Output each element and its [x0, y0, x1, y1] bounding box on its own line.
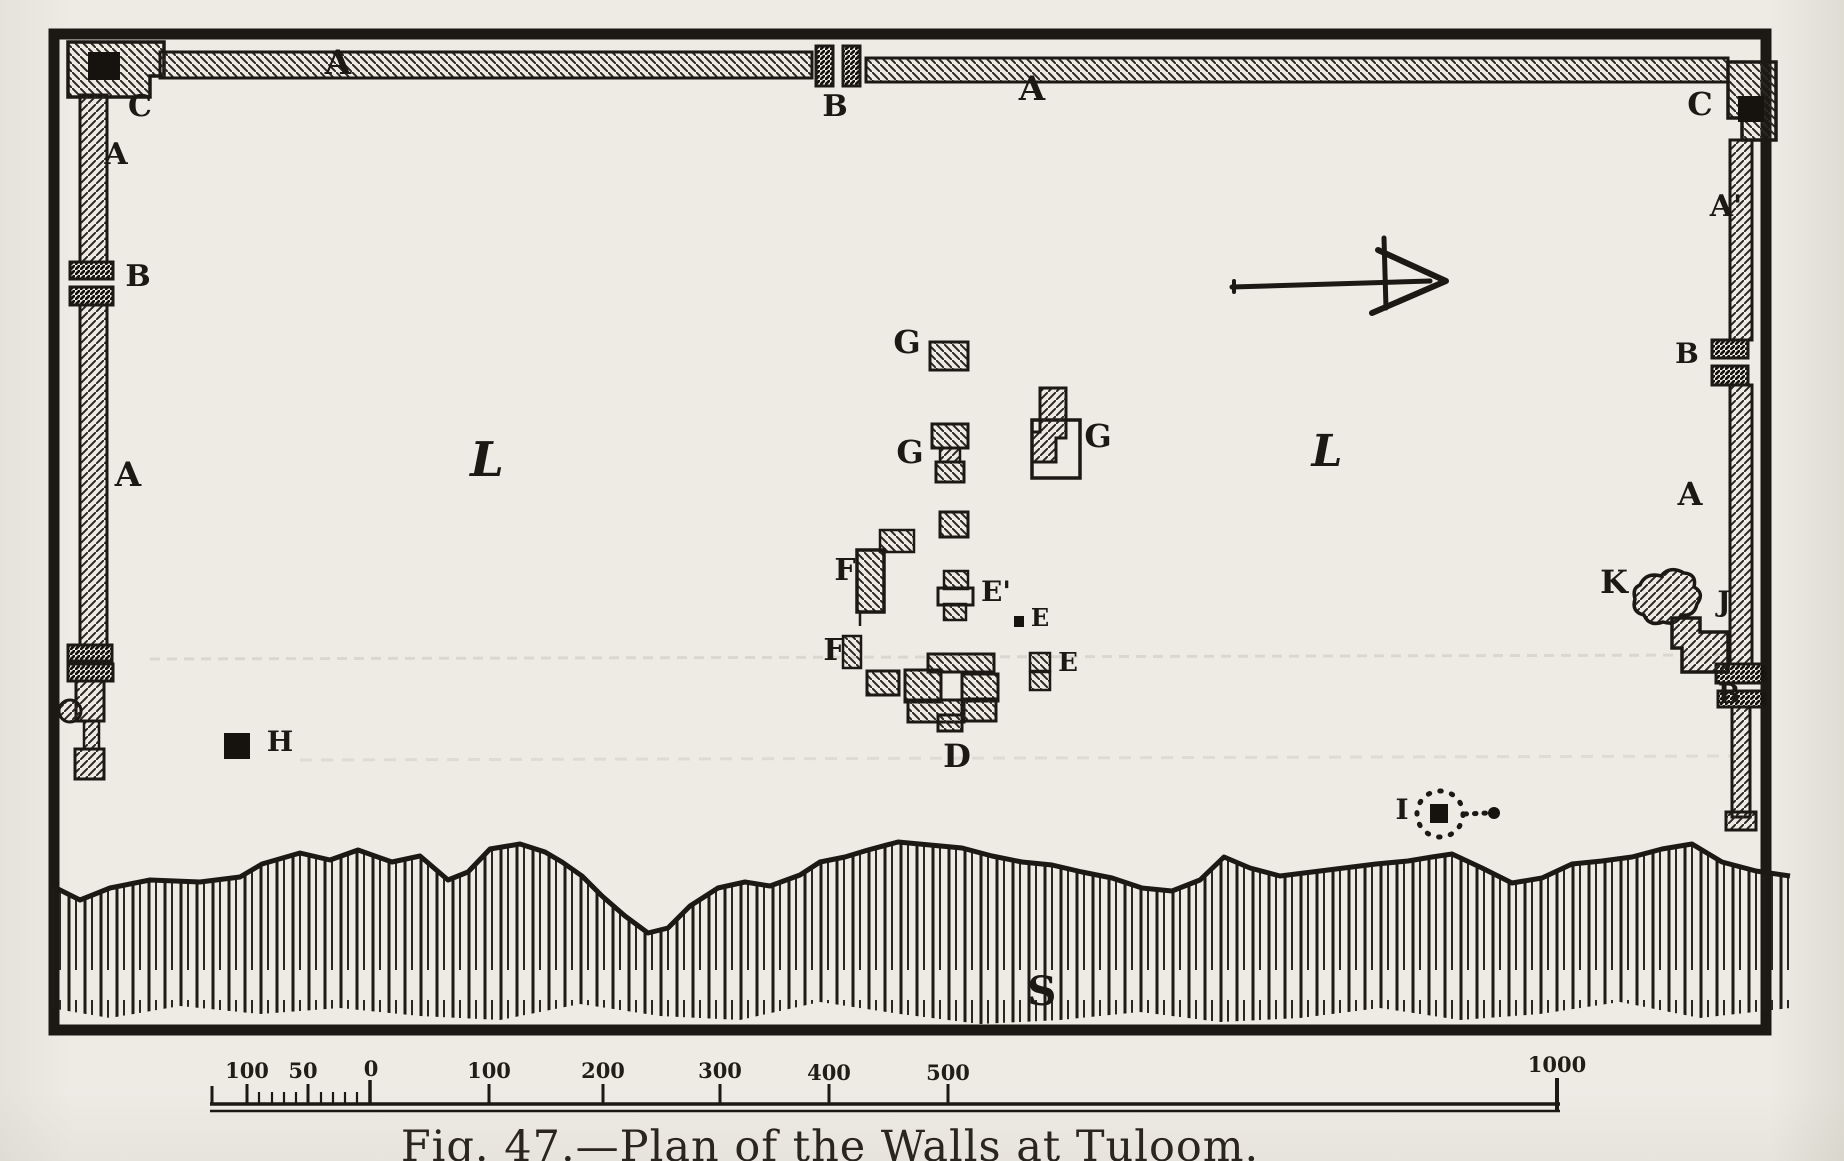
west-gate2-pier-top: [68, 645, 112, 661]
northwest-tower-chamber: [88, 52, 120, 80]
figure-caption: Fig. 47.—Plan of the Walls at Tuloom.: [401, 1122, 1259, 1161]
east-gate-upper-pier-bottom: [1712, 366, 1748, 385]
label-b-west-gate: B: [125, 262, 150, 292]
label-l-plaza-east: L: [1312, 430, 1343, 474]
west-wall-neck: [84, 721, 99, 749]
west-wall-end-block: [75, 749, 104, 779]
east-gate-upper-pier-top: [1712, 340, 1748, 358]
west-wall: [59, 95, 113, 779]
scale-tick-label: 400: [807, 1062, 851, 1083]
structure-g1: [930, 342, 968, 370]
east-wall: [1712, 140, 1768, 830]
scale-tick-label: 0: [364, 1058, 379, 1079]
structure-h: [224, 733, 250, 759]
structure-e-marker: [1014, 616, 1024, 627]
plan-drawing: [0, 0, 1844, 1161]
east-wall-lower-band: [1732, 707, 1750, 817]
structure-f2: [843, 636, 861, 668]
scale-bar: [210, 1078, 1560, 1111]
figure-page: C A B A C A B A A' B A B L L G G G F E' …: [0, 0, 1844, 1161]
label-e-mid: E: [1031, 606, 1049, 630]
label-f1: F: [834, 556, 855, 586]
scale-tick-label: 200: [581, 1060, 625, 1081]
east-wall-mid-band: [1730, 385, 1752, 664]
structure-unlabeled-square: [940, 512, 968, 537]
label-e-prime: E': [981, 578, 1011, 606]
label-s-sea: S: [1028, 972, 1057, 1012]
structure-g3: [1032, 388, 1080, 478]
label-h: H: [267, 728, 293, 756]
label-b-north-gate: B: [822, 92, 847, 122]
label-l-plaza-west: L: [470, 436, 504, 484]
label-f2: F: [823, 636, 844, 666]
structure-f1: [857, 530, 914, 626]
label-a-north-east: A: [1019, 72, 1045, 106]
structure-e-prime: [938, 571, 973, 620]
label-g2: G: [896, 436, 923, 468]
east-wall-upper-band: [1730, 140, 1752, 340]
scale-tick-label: 300: [698, 1060, 742, 1081]
label-a-west-upper: A: [104, 140, 127, 170]
northeast-tower-chamber: [1738, 96, 1764, 122]
label-k: K: [1600, 566, 1628, 598]
west-wall-mid-band: [80, 305, 107, 645]
label-a-prime-east: A': [1710, 192, 1742, 222]
west-gate2-pier-bottom: [68, 664, 113, 681]
structure-g2: [932, 424, 968, 482]
label-g1: G: [893, 326, 920, 358]
label-d: D: [943, 740, 971, 772]
sea-cliff: [50, 842, 1790, 1024]
label-b-east-lower: B: [1718, 682, 1740, 708]
label-i: I: [1395, 796, 1408, 824]
west-wall-upper-band: [80, 95, 107, 262]
structure-j: [1672, 618, 1728, 672]
west-gate-pier-top: [70, 262, 113, 279]
label-j: J: [1717, 588, 1730, 616]
scale-tick-label: 100: [225, 1060, 269, 1081]
north-wall-east-band: [866, 58, 1728, 82]
direction-arrow-icon: [1232, 238, 1446, 313]
west-gate-pier-bottom: [70, 287, 113, 305]
north-gate-pier-right: [843, 46, 860, 86]
structure-e-pair: [1030, 653, 1050, 690]
label-g3: G: [1084, 420, 1111, 452]
label-c-northwest: C: [128, 92, 152, 122]
label-e-lower: E: [1058, 650, 1078, 676]
scale-tick-label: 1000: [1528, 1054, 1586, 1075]
scale-minor-ticks: [247, 1080, 370, 1104]
north-gate-pier-left: [816, 46, 833, 86]
scale-tick-label: 50: [288, 1060, 317, 1081]
label-c-northeast: C: [1687, 88, 1712, 120]
cliff-hatch-area: [50, 842, 1790, 1024]
west-wall-round-turret: [59, 700, 81, 722]
feature-k-blob: [1634, 570, 1700, 624]
label-b-east-upper: B: [1675, 340, 1699, 368]
feature-i: [1417, 791, 1500, 837]
east-wall-end-block: [1726, 812, 1756, 830]
north-wall-west-band: [160, 52, 812, 78]
scale-tick-label: 500: [926, 1062, 970, 1083]
scale-tick-label: 100: [467, 1060, 511, 1081]
label-a-west-lower: A: [115, 458, 141, 492]
structure-d: [867, 654, 998, 731]
label-a-east-mid: A: [1678, 478, 1703, 510]
label-a-north-west: A: [325, 46, 351, 80]
